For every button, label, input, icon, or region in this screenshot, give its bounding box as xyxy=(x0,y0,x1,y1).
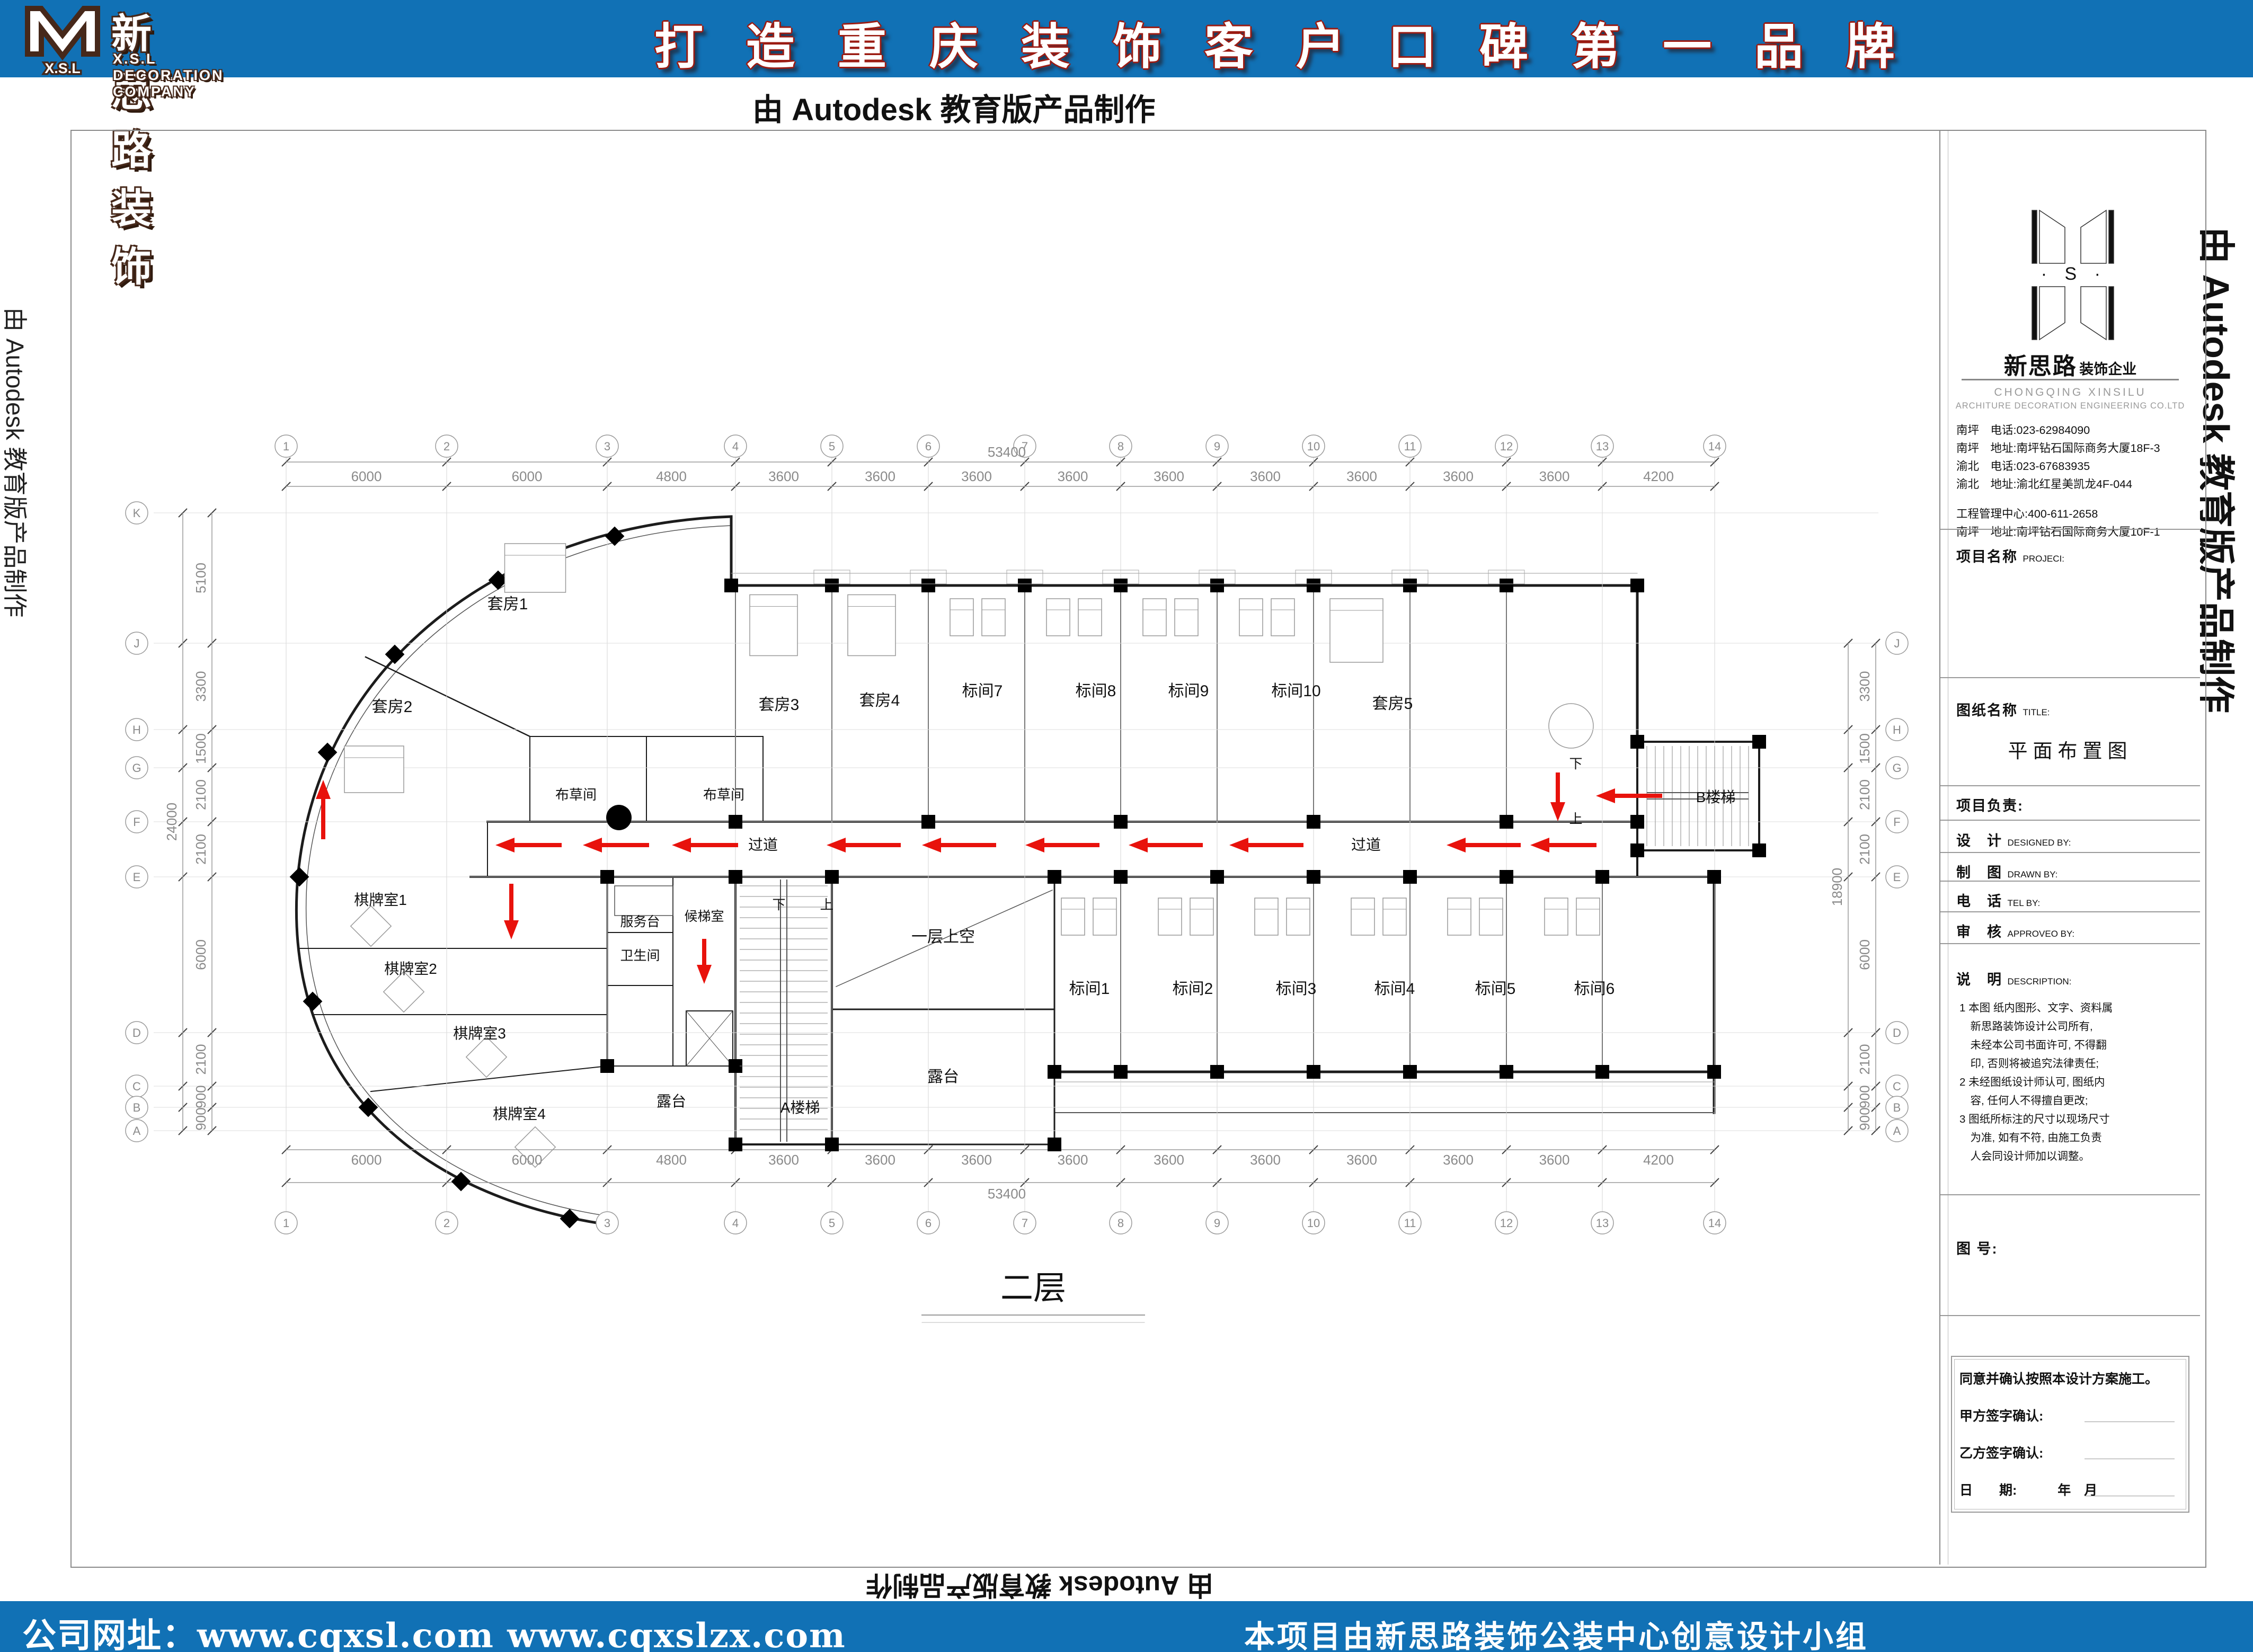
bed xyxy=(1175,599,1198,636)
room-label-1: 套房2 xyxy=(372,698,413,716)
bed xyxy=(1479,898,1503,935)
xsl-bowtie-logo-icon: X · S · L xyxy=(2028,209,2118,342)
void-terrace-block xyxy=(832,877,1054,1144)
grid-row-right-label: G xyxy=(1892,761,1901,775)
room-label-22: 一层上空 xyxy=(911,928,975,946)
grid-col-top-label: 2 xyxy=(443,440,450,453)
dim-top: 3600 xyxy=(1058,468,1088,484)
dim-right: 1500 xyxy=(1857,733,1873,764)
tb-figno-row: 图 号: xyxy=(1956,1237,1998,1258)
dim-right: 3300 xyxy=(1857,671,1873,702)
tb-brand-en1: CHONGQING XINSILU xyxy=(1940,386,2200,399)
room-label-28: 标间5 xyxy=(1475,980,1516,998)
dim-left: 1500 xyxy=(193,733,209,764)
list-item-4: 工程管理中心:400-611-2658 xyxy=(1956,505,2160,523)
dim-top: 3600 xyxy=(768,468,799,484)
dim-top: 4800 xyxy=(656,468,687,484)
dim-bottom: 3600 xyxy=(961,1152,992,1168)
column xyxy=(385,645,405,664)
dim-total-right: 18900 xyxy=(1829,868,1845,906)
bed xyxy=(1545,898,1568,935)
column xyxy=(1114,579,1128,592)
grid-row-right-label: H xyxy=(1893,723,1901,736)
room-label-10: 布草间 xyxy=(703,787,744,803)
column xyxy=(729,815,742,829)
tb-brand-cn: 新思路 xyxy=(2004,353,2077,379)
column xyxy=(1752,843,1766,857)
column xyxy=(1307,815,1320,829)
list-item-2: 未经本公司书面许可, 不得翻 xyxy=(1959,1036,2113,1054)
dim-right: 2100 xyxy=(1857,779,1873,810)
dim-bottom: 3600 xyxy=(768,1152,799,1168)
bed xyxy=(1287,898,1310,935)
grid-col-bottom-label: 11 xyxy=(1404,1216,1416,1230)
list-item-8: 人会同设计师加以调整。 xyxy=(1959,1147,2113,1166)
title-block-inner-border xyxy=(1948,131,1948,1565)
room-label-13: 棋牌室1 xyxy=(354,892,407,908)
grid-col-bottom-label: 2 xyxy=(443,1216,450,1230)
grid-col-top-label: 14 xyxy=(1708,440,1721,453)
room-label-14: 棋牌室2 xyxy=(384,961,437,977)
tb-desc-row: 说 明 DESCRIPTION: xyxy=(1956,968,2071,989)
dim-bottom: 3600 xyxy=(1154,1152,1184,1168)
grid-col-top-label: 6 xyxy=(925,440,932,453)
column xyxy=(729,870,742,884)
column xyxy=(1595,870,1609,884)
grid-row-right-label: J xyxy=(1894,637,1900,650)
dim-right: 6000 xyxy=(1857,939,1873,970)
bed xyxy=(950,599,973,636)
bed xyxy=(1061,898,1085,935)
tb-contact-list: 南坪 电话:023-62984090南坪 地址:南坪钻石国际商务大厦18F-3渝… xyxy=(1956,421,2160,541)
dim-left: 2100 xyxy=(193,1044,209,1075)
grid-row-right-label: C xyxy=(1893,1080,1901,1093)
dim-top: 3600 xyxy=(1346,468,1377,484)
room-label-4: 标间7 xyxy=(962,682,1003,700)
column xyxy=(1307,870,1320,884)
grid-row-left-label: F xyxy=(133,815,140,829)
grid-row-left-label: E xyxy=(133,871,141,884)
bed xyxy=(1383,898,1406,935)
grid-row-right-label: B xyxy=(1893,1101,1901,1114)
column xyxy=(1500,579,1513,592)
room-label-32: 上 xyxy=(820,898,833,912)
column xyxy=(1403,579,1417,592)
column xyxy=(1210,1065,1224,1079)
room-label-11: 过道 xyxy=(748,837,778,853)
grid-col-top-label: 12 xyxy=(1500,440,1513,453)
list-item-6: 3 图纸所标注的尺寸以现场尺寸 xyxy=(1959,1110,2113,1129)
grid-col-top-label: 5 xyxy=(829,440,835,453)
room-label-27: 标间4 xyxy=(1374,980,1415,998)
room-label-19: 候梯室 xyxy=(684,909,724,924)
bed xyxy=(1255,898,1278,935)
dim-top: 6000 xyxy=(351,468,382,484)
list-item-0: 南坪 电话:023-62984090 xyxy=(1956,421,2160,439)
room-label-17: 服务台 xyxy=(620,914,660,929)
dim-bottom: 3600 xyxy=(1539,1152,1570,1168)
grid-row-right-label: A xyxy=(1893,1124,1901,1138)
column xyxy=(1114,815,1128,829)
room-label-25: 标间2 xyxy=(1173,980,1213,998)
grid-row-left-label: A xyxy=(133,1124,141,1138)
walls xyxy=(296,517,1759,1322)
room-label-29: 标间6 xyxy=(1574,980,1615,998)
bed xyxy=(1046,599,1070,636)
dim-total-top: 53400 xyxy=(988,444,1026,460)
drawing-title: 平面布置图 xyxy=(1940,735,2200,763)
grid-row-left-label: D xyxy=(132,1026,141,1040)
grid-col-top-label: 10 xyxy=(1307,440,1320,453)
grid-row-right-label: E xyxy=(1893,871,1901,884)
party-a-label: 甲方签字确认: xyxy=(1959,1406,2043,1425)
room-label-33: 下 xyxy=(1569,757,1582,771)
bed xyxy=(1576,898,1600,935)
room-label-24: 标间1 xyxy=(1069,980,1110,998)
room-label-21: A楼梯 xyxy=(780,1099,820,1116)
dim-left: 2100 xyxy=(193,834,209,865)
grid-col-top-label: 1 xyxy=(283,440,289,453)
grid-col-bottom-label: 3 xyxy=(604,1216,610,1230)
dim-top: 3600 xyxy=(1250,468,1281,484)
column xyxy=(1018,579,1032,592)
footer-credit: 本项目由新思路装饰公装中心创意设计小组 xyxy=(1244,1612,1868,1652)
dim-left: 900 xyxy=(193,1107,209,1130)
date-row: 日 期: 年 月 xyxy=(1959,1480,2097,1499)
bed xyxy=(1158,898,1182,935)
tb-brand-en2: ARCHITURE DECORATION ENGINEERING CO.LTD xyxy=(1940,401,2200,411)
room-label-18: 卫生间 xyxy=(620,948,660,963)
column xyxy=(1500,870,1513,884)
room-label-8: 套房5 xyxy=(1372,695,1413,713)
title-block: X · S · L 新思路 装饰企业 CHONGQING XINSILU ARC… xyxy=(1939,131,2200,1565)
tb-approve-row: 审 核 APPROVEO BY: xyxy=(1956,920,2074,941)
column xyxy=(1707,1065,1721,1079)
service-desk xyxy=(615,886,673,916)
party-a-sign-line xyxy=(2085,1422,2175,1422)
dim-right: 900 xyxy=(1857,1085,1873,1108)
list-item-0: 1 本图 纸内图形、文字、资料属 xyxy=(1959,999,2113,1017)
room-label-3: 套房4 xyxy=(859,692,900,709)
column xyxy=(605,527,625,546)
grid-row-left-label: J xyxy=(134,637,140,650)
dim-bottom: 6000 xyxy=(351,1152,382,1168)
dim-left: 3300 xyxy=(193,671,209,702)
column xyxy=(1752,735,1766,749)
bed xyxy=(1190,898,1213,935)
column xyxy=(1210,579,1224,592)
dim-bottom: 3600 xyxy=(1250,1152,1281,1168)
grid-row-left-label: B xyxy=(133,1101,141,1114)
tb-draw-row: 制 图 DRAWN BY: xyxy=(1956,861,2057,882)
column xyxy=(724,579,738,592)
column xyxy=(1630,815,1644,829)
column xyxy=(1210,870,1224,884)
grid-row-left-label: H xyxy=(132,723,141,736)
column xyxy=(600,870,614,884)
grid-row-left-label: G xyxy=(132,761,141,775)
list-item-5: 容, 任何人不得擅自更改; xyxy=(1959,1091,2113,1110)
grid-col-top-label: 13 xyxy=(1596,440,1609,453)
room-label-23: 露台 xyxy=(927,1068,959,1086)
chess-table xyxy=(466,1037,507,1077)
dim-right: 2100 xyxy=(1857,1044,1873,1075)
column xyxy=(825,579,839,592)
dim-top: 3600 xyxy=(865,468,895,484)
room-label-31: 下 xyxy=(772,898,785,912)
list-item-4: 2 未经图纸设计师认可, 图纸内 xyxy=(1959,1073,2113,1091)
grid-row-right-label: D xyxy=(1893,1026,1901,1040)
bed xyxy=(1093,898,1116,935)
grid-col-bottom-label: 1 xyxy=(283,1216,289,1230)
bed xyxy=(1271,599,1294,636)
room-label-5: 标间8 xyxy=(1076,682,1116,700)
footer-bar: 公司网址：www.cqxsl.com www.cqxslzx.com 本项目由新… xyxy=(0,1601,2253,1652)
column xyxy=(1630,843,1644,857)
column xyxy=(1048,1065,1061,1079)
chess-table xyxy=(351,906,391,946)
grid-col-bottom-label: 14 xyxy=(1708,1216,1721,1230)
grid-col-top-label: 4 xyxy=(732,440,739,453)
list-item-7: 为准, 如有不符, 由施工负责 xyxy=(1959,1129,2113,1147)
grid-row-left-label: C xyxy=(132,1080,141,1093)
dim-left: 6000 xyxy=(193,939,209,970)
room-label-16: 棋牌室4 xyxy=(493,1106,546,1122)
room-label-0: 套房1 xyxy=(487,596,528,613)
column xyxy=(729,1138,742,1151)
bed xyxy=(1351,898,1374,935)
grid-col-bottom-label: 9 xyxy=(1214,1216,1220,1230)
dim-bottom: 3600 xyxy=(865,1152,895,1168)
list-item-1: 新思路装饰设计公司所有, xyxy=(1959,1017,2113,1036)
column xyxy=(1707,870,1721,884)
grid-col-bottom-label: 13 xyxy=(1596,1216,1609,1230)
dim-bottom: 4200 xyxy=(1643,1152,1674,1168)
grid-col-bottom-label: 4 xyxy=(732,1216,739,1230)
grid-col-bottom-label: 12 xyxy=(1500,1216,1513,1230)
room-label-30: B楼梯 xyxy=(1696,789,1736,805)
room-label-9: 布草间 xyxy=(555,787,597,803)
list-item-1: 南坪 地址:南坪钻石国际商务大厦18F-3 xyxy=(1956,439,2160,457)
tb-brand-underline xyxy=(1962,379,2179,380)
tb-project-row: 项目名称 PROJECI: xyxy=(1956,545,2064,566)
bed xyxy=(1143,599,1166,636)
column xyxy=(1403,1065,1417,1079)
column xyxy=(825,1138,839,1151)
date-line xyxy=(2085,1496,2175,1496)
grid-col-bottom-label: 7 xyxy=(1022,1216,1028,1230)
column xyxy=(290,867,309,887)
suite-bed xyxy=(848,595,895,656)
signbox-statement: 同意并确认按照本设计方案施工。 xyxy=(1959,1369,2158,1388)
dim-top: 3600 xyxy=(1443,468,1474,484)
grid-col-top-label: 3 xyxy=(604,440,610,453)
grid-col-top-label: 11 xyxy=(1404,440,1416,453)
tb-brand-suffix: 装饰企业 xyxy=(2079,361,2136,377)
room-label-20: 露台 xyxy=(657,1093,686,1109)
dim-bottom: 6000 xyxy=(512,1152,543,1168)
grid-row-left-label: K xyxy=(133,507,141,520)
bed xyxy=(982,599,1005,636)
room-label-35: 二层 xyxy=(1000,1270,1066,1307)
room-label-26: 标间3 xyxy=(1276,980,1317,998)
tb-pm-row: 项目负责: xyxy=(1956,794,2024,815)
column xyxy=(1630,735,1644,749)
dim-left: 900 xyxy=(193,1085,209,1108)
column xyxy=(1114,1065,1128,1079)
grid-col-bottom-label: 8 xyxy=(1117,1216,1124,1230)
column xyxy=(921,579,935,592)
dim-total-left: 24000 xyxy=(164,803,180,841)
column xyxy=(560,1209,580,1229)
drawing-sheet: X.S.L 新思路装饰 X.S.L DECORATION COMPANY 打造重… xyxy=(0,0,2253,1652)
grid-col-bottom-label: 10 xyxy=(1307,1216,1320,1230)
grid-row-right-label: F xyxy=(1893,815,1900,829)
dim-bottom: 3600 xyxy=(1346,1152,1377,1168)
dim-top: 3600 xyxy=(1539,468,1570,484)
column xyxy=(1114,870,1128,884)
plan-annotations: 1122334455667788991010111112121313141453… xyxy=(126,435,1908,1307)
tb-title-row: 图纸名称 TITLE: xyxy=(1956,699,2050,720)
grid-col-top-label: 8 xyxy=(1117,440,1124,453)
column xyxy=(1307,579,1320,592)
tb-description: 1 本图 纸内图形、文字、资料属 新思路装饰设计公司所有, 未经本公司书面许可,… xyxy=(1959,999,2113,1166)
footer-website: 公司网址：www.cqxsl.com www.cqxslzx.com xyxy=(22,1609,846,1652)
suite-bed xyxy=(505,544,566,592)
room-label-2: 套房3 xyxy=(759,696,800,714)
column xyxy=(1500,1065,1513,1079)
grid-col-bottom-label: 5 xyxy=(829,1216,835,1230)
column xyxy=(1500,815,1513,829)
dim-top: 4200 xyxy=(1643,468,1674,484)
room-label-15: 棋牌室3 xyxy=(453,1025,506,1042)
room-label-12: 过道 xyxy=(1351,837,1381,853)
list-item-3: 渝北 地址:渝北红星美凯龙4F-044 xyxy=(1956,475,2160,493)
list-item-5: 南坪 地址:南坪钻石国际商务大厦10F-1 xyxy=(1956,523,2160,541)
tb-design-row: 设 计 DESIGNED BY: xyxy=(1956,829,2071,850)
dim-top: 3600 xyxy=(961,468,992,484)
column xyxy=(1048,1138,1061,1151)
column xyxy=(1403,870,1417,884)
column xyxy=(921,815,935,829)
bowtie-letters: X · S · L xyxy=(2028,264,2118,284)
bed xyxy=(1239,599,1263,636)
column xyxy=(1307,1065,1320,1079)
room-label-34: 上 xyxy=(1569,812,1582,827)
suite-bed xyxy=(344,746,404,793)
column xyxy=(1048,870,1061,884)
chess-table xyxy=(384,972,424,1012)
dim-right: 2100 xyxy=(1857,834,1873,865)
dim-left: 5100 xyxy=(193,563,209,593)
dim-bottom: 3600 xyxy=(1058,1152,1088,1168)
dim-left: 2100 xyxy=(193,779,209,810)
room-label-6: 标间9 xyxy=(1168,682,1209,700)
tb-brand: 新思路 装饰企业 xyxy=(1940,347,2200,381)
column xyxy=(825,870,839,884)
list-item-3: 印, 否则将被追究法律责任; xyxy=(1959,1054,2113,1073)
signature-box: 同意并确认按照本设计方案施工。 甲方签字确认: 乙方签字确认: 日 期: 年 月 xyxy=(1951,1356,2189,1513)
grid-col-bottom-label: 6 xyxy=(925,1216,932,1230)
dim-bottom: 4800 xyxy=(656,1152,687,1168)
bed xyxy=(1448,898,1471,935)
column xyxy=(1630,579,1644,592)
dim-right: 900 xyxy=(1857,1107,1873,1130)
column xyxy=(1595,1065,1609,1079)
column-round xyxy=(606,805,632,830)
dim-bottom: 3600 xyxy=(1443,1152,1474,1168)
room-label-7: 标间10 xyxy=(1271,682,1320,700)
dim-top: 3600 xyxy=(1154,468,1184,484)
column xyxy=(600,1059,614,1073)
suite-bed xyxy=(1330,599,1383,662)
tb-tel-row: 电 话 TEL BY: xyxy=(1956,890,2040,910)
suite-bed xyxy=(750,595,797,656)
dim-total-bottom: 53400 xyxy=(988,1186,1026,1202)
grid-col-top-label: 9 xyxy=(1214,440,1220,453)
list-item-2: 渝北 电话:023-67683935 xyxy=(1956,457,2160,475)
floor-plan: 1122334455667788991010111112121313141453… xyxy=(0,0,2253,1652)
party-b-sign-line xyxy=(2085,1459,2175,1459)
party-b-label: 乙方签字确认: xyxy=(1959,1443,2043,1462)
bed xyxy=(1078,599,1102,636)
dim-top: 6000 xyxy=(512,468,543,484)
